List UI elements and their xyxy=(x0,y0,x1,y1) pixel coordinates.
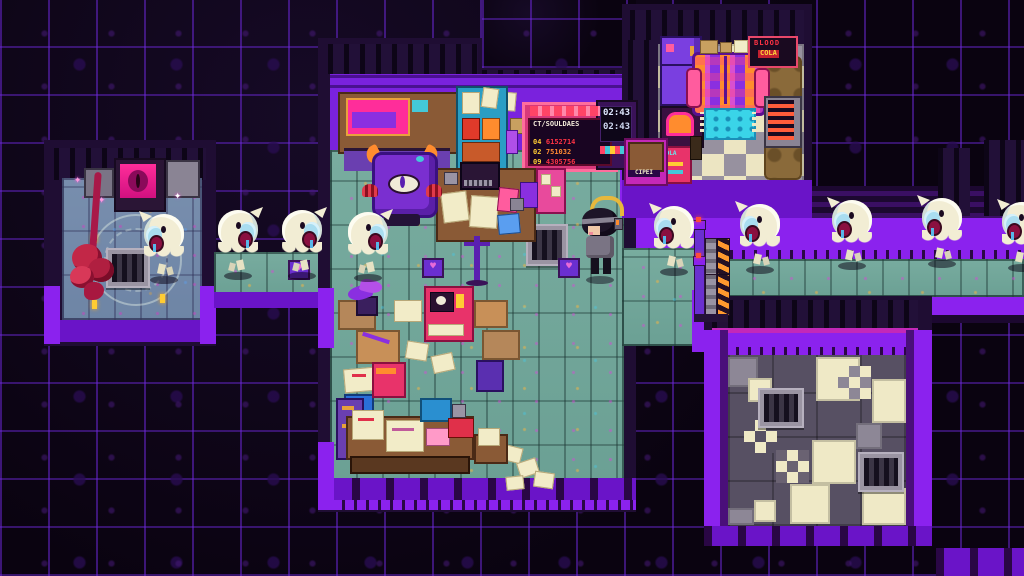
storeroom-pillar-right xyxy=(906,330,932,544)
clock-line2: 02:43 xyxy=(603,123,630,133)
storeroom-pillar-left xyxy=(704,330,728,544)
office-bottom-trim xyxy=(318,500,636,510)
pinboard-note xyxy=(541,174,551,185)
typewriter-keys xyxy=(464,180,492,186)
corner-wall-piece xyxy=(936,548,1024,576)
queue-barrier xyxy=(694,256,728,324)
skull-icon xyxy=(436,296,446,305)
floor-tile-cream xyxy=(754,500,776,522)
floor-tile-cream xyxy=(862,488,906,525)
desk-paper xyxy=(469,195,499,229)
waste-bin xyxy=(476,360,504,392)
kiosk-label: CIPEI xyxy=(628,170,660,177)
demon-claw-right xyxy=(426,184,442,197)
loose-paper xyxy=(405,340,430,361)
game-viewport: ✦ ✦ ✦ ♥ CT/SOULDAES xyxy=(0,0,1024,576)
poster-line2: COLA xyxy=(758,50,779,58)
mug xyxy=(452,404,466,418)
fridge-door-line xyxy=(662,64,696,66)
demon-eye-pupil xyxy=(400,176,405,188)
mosaic-patch xyxy=(776,450,809,483)
register-slot xyxy=(376,368,396,374)
floor-vent xyxy=(758,388,804,428)
office-top-wall-a xyxy=(328,44,478,74)
storeroom-rail xyxy=(712,347,918,355)
candle xyxy=(160,294,165,303)
mosaic-patch xyxy=(838,366,871,399)
blood-cola-poster: BLOOD COLA xyxy=(748,36,798,68)
pinboard-note xyxy=(551,186,561,197)
ghost-npc[interactable] xyxy=(736,194,784,278)
paper-tray xyxy=(352,410,384,440)
floor-tile-cream xyxy=(790,484,830,524)
couch-seam xyxy=(724,56,727,104)
counter-item xyxy=(412,100,428,112)
ghost-npc[interactable] xyxy=(918,188,966,272)
red-scribble xyxy=(358,418,374,421)
scattered-paper xyxy=(505,475,524,491)
floor-tile-gray xyxy=(856,423,882,449)
machine-tray xyxy=(428,324,464,336)
soul-row-num: 4305756 xyxy=(546,158,576,166)
storeroom-top-wall xyxy=(712,300,918,330)
potion-bottle xyxy=(506,130,518,154)
pink-scribble xyxy=(392,428,414,431)
paper-stack xyxy=(394,300,422,322)
soul-board-marquee xyxy=(530,106,604,116)
player-cheek xyxy=(589,232,593,235)
coat-rack-arms xyxy=(464,242,490,246)
desk-paper xyxy=(440,191,469,224)
counter-ledger xyxy=(352,112,396,128)
shelf-box-orange xyxy=(482,118,500,140)
ritual-room-bottom-wall xyxy=(44,320,216,342)
coffee-mug xyxy=(444,172,458,185)
clock-line1: 02:43 xyxy=(603,109,630,119)
office-bottom-wall xyxy=(318,478,636,502)
rug-fringe xyxy=(752,112,756,132)
pink-book xyxy=(426,428,450,446)
heart-tile: ♥ xyxy=(422,258,444,278)
slime-splash xyxy=(416,156,424,162)
rug-fringe xyxy=(700,112,704,132)
red-book xyxy=(448,418,474,438)
ghost-npc[interactable] xyxy=(214,200,262,284)
player-character[interactable] xyxy=(576,196,624,288)
wall-note xyxy=(734,40,748,53)
machine-lever xyxy=(456,294,464,308)
envelope-seal xyxy=(352,374,366,377)
bottle xyxy=(690,136,702,160)
floor-tile-gray xyxy=(728,508,754,525)
sparkle-icon: ✦ xyxy=(74,172,81,186)
rug xyxy=(704,108,756,140)
ghost-npc[interactable] xyxy=(828,190,876,274)
blue-memo xyxy=(497,213,521,235)
shelf-box-red xyxy=(462,118,480,140)
candle xyxy=(92,300,97,309)
sparkle-icon: ✦ xyxy=(174,188,181,202)
soul-board-header: CT/SOULDAES xyxy=(533,121,579,129)
player-torso xyxy=(586,236,614,258)
floor-vent xyxy=(858,452,904,492)
wall-note xyxy=(720,42,732,53)
ghost-npc[interactable] xyxy=(344,202,392,286)
shelf-papers xyxy=(462,92,480,114)
shelf-drawer xyxy=(462,142,500,162)
soul-row-id: 09 xyxy=(533,158,541,166)
work-table-frame xyxy=(350,456,470,474)
ghost-npc[interactable] xyxy=(998,192,1024,276)
poster-line1: BLOOD xyxy=(754,40,780,48)
office-top-notch xyxy=(482,0,636,68)
coffee-mug xyxy=(510,198,524,211)
headphone-light xyxy=(616,220,619,225)
storeroom-bottom-wall xyxy=(704,526,932,546)
radiator-coils xyxy=(768,100,794,140)
eye-pupil xyxy=(136,174,140,188)
player-leg xyxy=(603,258,611,274)
neon-heater-glow xyxy=(666,112,694,136)
ticket-clock-display: 02:43 02:43 xyxy=(600,106,632,142)
office-pillar-left-b xyxy=(318,442,334,510)
couch-arm-left xyxy=(686,68,702,108)
ghost-npc[interactable] xyxy=(650,196,698,280)
demon-claw-left xyxy=(362,184,378,197)
ritual-room-pillar-left xyxy=(44,286,60,344)
ghost-npc[interactable] xyxy=(140,204,188,288)
crate xyxy=(474,300,508,328)
floor-tile-cream xyxy=(812,440,856,484)
player-shadow xyxy=(586,276,614,284)
player-leg xyxy=(591,258,599,274)
office-pillar-left-a xyxy=(318,288,334,348)
kiosk-board xyxy=(628,142,664,172)
wall-note xyxy=(700,40,718,54)
ghost-npc[interactable] xyxy=(278,200,326,284)
large-ledger xyxy=(386,420,424,452)
crate xyxy=(482,330,520,360)
fridge-magnet xyxy=(666,44,674,52)
scattered-paper xyxy=(533,471,555,490)
floor-tile-cream xyxy=(872,379,906,423)
parcel xyxy=(478,428,500,446)
machine-right xyxy=(166,160,200,198)
shelf-papers xyxy=(481,87,500,109)
